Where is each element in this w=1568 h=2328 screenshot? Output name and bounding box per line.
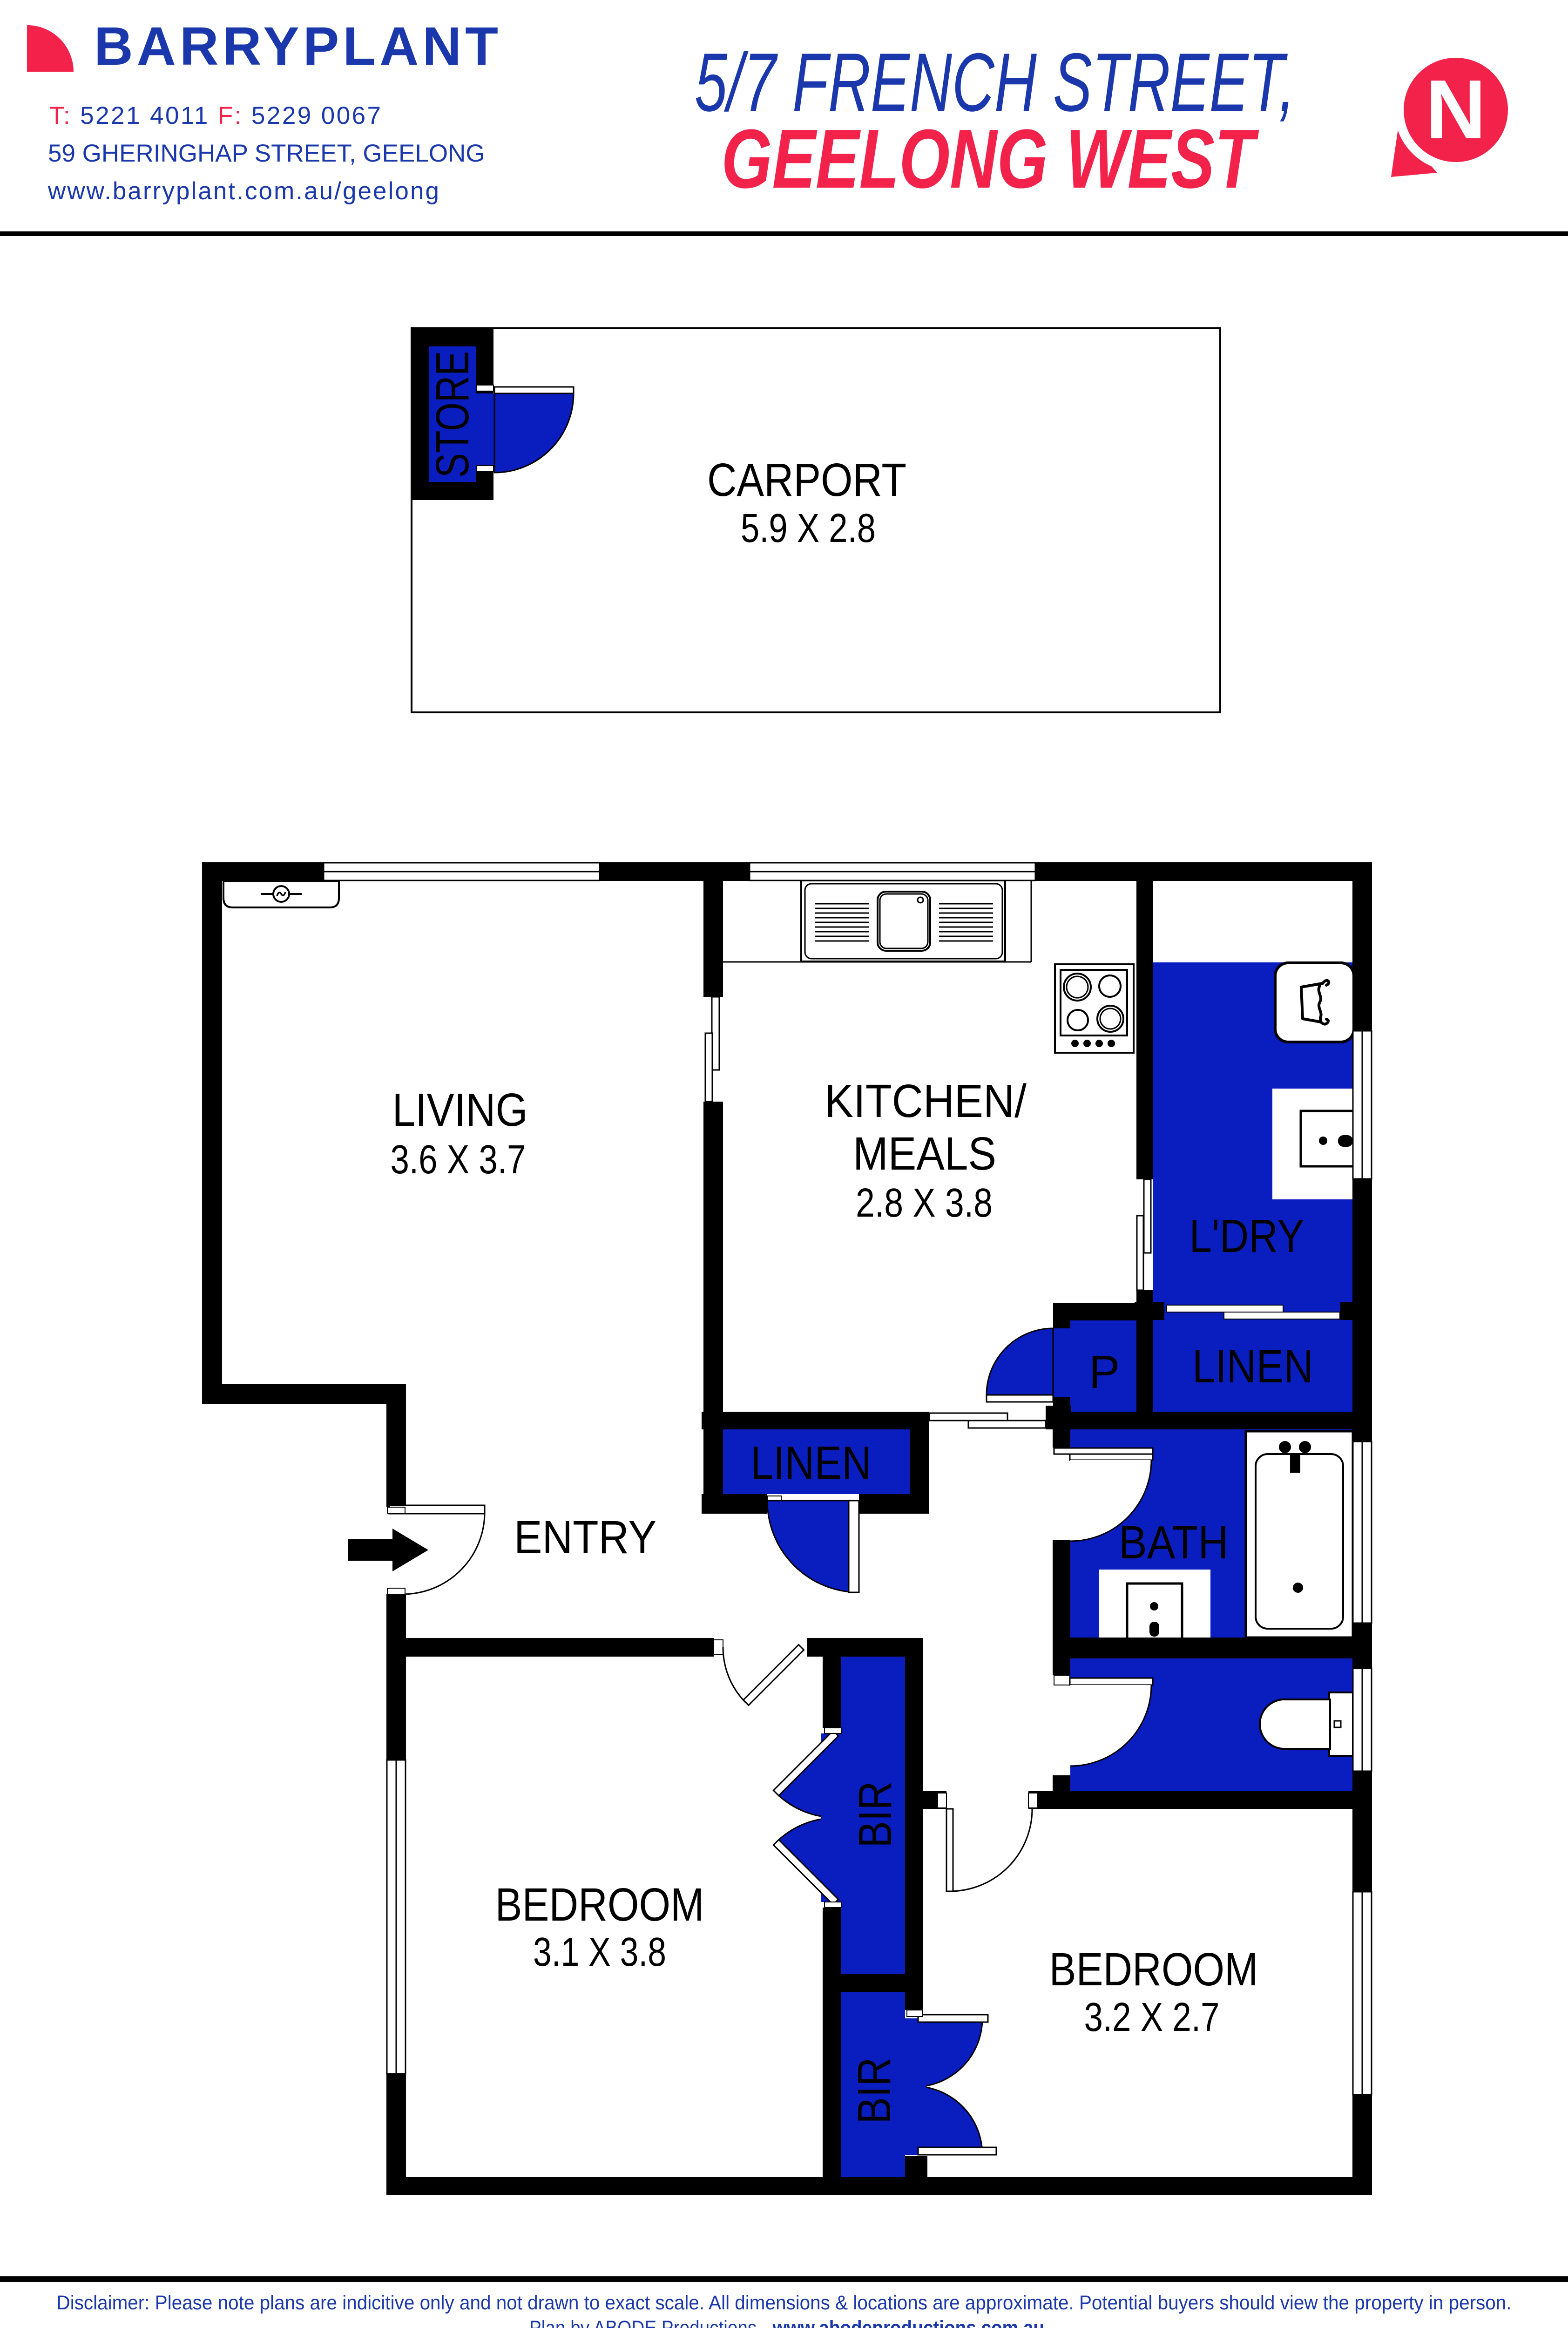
svg-text:BIR: BIR: [849, 1781, 901, 1848]
svg-text:3.1 X 3.8: 3.1 X 3.8: [533, 1929, 666, 1975]
svg-text:ENTRY: ENTRY: [514, 1511, 656, 1563]
svg-text:3.6 X 3.7: 3.6 X 3.7: [391, 1137, 526, 1182]
svg-text:3.2 X 2.7: 3.2 X 2.7: [1084, 1995, 1220, 2040]
svg-text:2.8 X 3.8: 2.8 X 3.8: [856, 1180, 993, 1225]
svg-text:59 GHERINGHAP STREET, GEELONG: 59 GHERINGHAP STREET, GEELONG: [48, 140, 485, 167]
svg-text:T: 5221 4011 F: 5229 0067: T: 5221 4011 F: 5229 0067: [49, 102, 381, 129]
svg-text:www.barryplant.com.au/geelong: www.barryplant.com.au/geelong: [47, 177, 439, 205]
svg-text:BATH: BATH: [1119, 1516, 1229, 1569]
svg-text:LINEN: LINEN: [1192, 1340, 1313, 1393]
svg-text:STORE: STORE: [426, 351, 479, 478]
svg-text:5.9 X 2.8: 5.9 X 2.8: [741, 506, 876, 551]
svg-text:BARRYPLANT: BARRYPLANT: [94, 16, 498, 76]
svg-text:P: P: [1089, 1346, 1120, 1398]
svg-text:N: N: [1426, 63, 1486, 156]
svg-text:LIVING: LIVING: [392, 1084, 528, 1136]
svg-text:MEALS: MEALS: [853, 1128, 996, 1180]
svg-text:BEDROOM: BEDROOM: [1049, 1943, 1258, 1996]
svg-text:L'DRY: L'DRY: [1190, 1210, 1304, 1262]
svg-text:BIR: BIR: [848, 2057, 900, 2124]
svg-text:Disclaimer: Please note plans: Disclaimer: Please note plans are indici…: [57, 2292, 1512, 2314]
svg-text:KITCHEN/: KITCHEN/: [825, 1075, 1027, 1127]
svg-text:BEDROOM: BEDROOM: [495, 1879, 704, 1931]
svg-text:GEELONG WEST: GEELONG WEST: [722, 112, 1259, 206]
svg-text:CARPORT: CARPORT: [707, 454, 906, 506]
svg-text:LINEN: LINEN: [750, 1437, 872, 1489]
svg-text:Plan by ABODE Productions - ww: Plan by ABODE Productions - www.abodepro…: [529, 2317, 1044, 2328]
